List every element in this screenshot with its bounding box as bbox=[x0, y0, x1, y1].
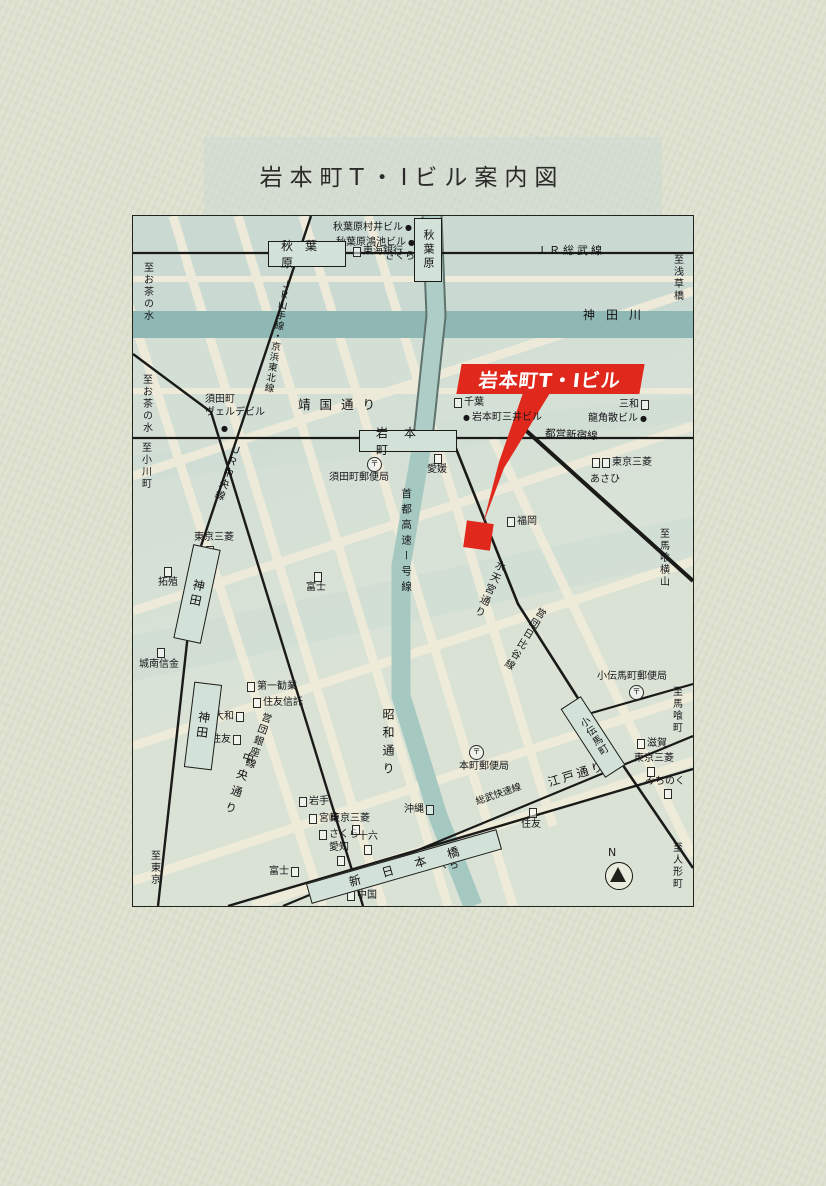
bank-name: 東京三菱 bbox=[330, 813, 370, 826]
bank-name: 住友 bbox=[521, 819, 541, 832]
bank-icon bbox=[507, 517, 515, 527]
road-name: 首都高速ー号線 bbox=[399, 488, 412, 597]
bank-label-tokyo-mitsubishi-kanda: 東京三菱 bbox=[194, 532, 234, 545]
building-name: 秋葉原村井ビル bbox=[333, 222, 403, 235]
building-dot: ● bbox=[463, 414, 470, 422]
bank-label-ehime: 愛媛 bbox=[427, 464, 447, 477]
bank-name: 愛媛 bbox=[427, 464, 447, 477]
bank-icon bbox=[247, 682, 255, 692]
direction-asakusabashi: 至浅草橋 bbox=[670, 254, 683, 302]
bank-name: 岩手 bbox=[309, 796, 329, 809]
bank-name: 城南信金 bbox=[139, 659, 179, 672]
bank-label-fuji-c: 富士 bbox=[306, 582, 326, 595]
building-label-verde: 須田町ヴェルデビル bbox=[205, 394, 265, 419]
direction-text: 至人形町 bbox=[669, 842, 682, 890]
post-office-icon-sudacho: 〒 bbox=[367, 457, 382, 472]
station-akihabara-jr: 秋葉原 bbox=[268, 241, 346, 267]
line-name: ＪＲ総武線 bbox=[535, 244, 605, 258]
direction-ogawamachi: 至小川町 bbox=[138, 442, 151, 490]
direction-ochanomizu-1: 至お茶の水 bbox=[140, 262, 153, 322]
direction-bakurocho: 至馬喰町 bbox=[669, 686, 682, 734]
bank-icon bbox=[529, 808, 537, 818]
bank-icon bbox=[314, 572, 322, 582]
bank-icon bbox=[236, 712, 244, 722]
bank-icon bbox=[602, 458, 610, 468]
bank-label-tokai: 東海銀行 bbox=[353, 246, 403, 259]
bank-label-sumitomo-trust: 住友信託 bbox=[253, 697, 303, 710]
bank-name: 三和 bbox=[619, 399, 639, 412]
building-dot: ● bbox=[405, 224, 412, 232]
building-label-ryukakusan: 龍角散ビル● bbox=[588, 413, 647, 426]
bank-name: 沖縄 bbox=[404, 804, 424, 817]
bank-label-tokyo-mitsubishi-k: 東京三菱 bbox=[634, 753, 674, 766]
bank-icon bbox=[664, 789, 672, 799]
bank-icon bbox=[337, 856, 345, 866]
bank-label-okinawa: 沖縄 bbox=[404, 804, 434, 817]
highlight-banner: 岩本町T・Iビル bbox=[456, 364, 644, 394]
post-office-name: 須田町郵便局 bbox=[329, 472, 389, 485]
bank-label-shiga: 滋賀 bbox=[637, 738, 667, 751]
bank-name: 富士 bbox=[306, 582, 326, 595]
station-label: 神田 bbox=[186, 578, 209, 611]
bank-label-juroku: 十六 bbox=[358, 831, 378, 844]
direction-tokyo: 至東京 bbox=[147, 850, 160, 886]
direction-text: 至小川町 bbox=[138, 442, 151, 490]
bank-label-daiichi-kangyo: 第一勧業 bbox=[247, 681, 297, 694]
station-label: 秋葉原 bbox=[281, 237, 345, 271]
direction-text: 至東京 bbox=[147, 850, 160, 886]
bank-label-chiba: 千葉 bbox=[454, 397, 484, 410]
road-label-shuto-expwy: 首都高速ー号線 bbox=[399, 488, 412, 597]
bank-name: 東京三菱 bbox=[194, 532, 234, 545]
bank-icon-sumitomo-e bbox=[529, 808, 537, 818]
bank-label-tokyo-mitsubishi-s: 東京三菱 bbox=[330, 813, 370, 826]
bank-icon-jonan bbox=[157, 648, 165, 658]
station-label: 神田 bbox=[193, 710, 214, 742]
north-arrow-icon bbox=[610, 867, 626, 882]
river-name: 神田川 bbox=[583, 308, 652, 323]
station-iwamotocho: 岩本町 bbox=[359, 430, 457, 452]
bank-icon bbox=[164, 567, 172, 577]
post-office-icon-honcho: 〒 bbox=[469, 745, 484, 760]
bank-icon bbox=[157, 648, 165, 658]
building-label-murai: 秋葉原村井ビル● bbox=[333, 222, 412, 235]
bank-icon-juroku bbox=[364, 845, 372, 855]
direction-text: 至浅草橋 bbox=[670, 254, 683, 302]
post-office-label-honcho: 本町郵便局 bbox=[459, 761, 509, 774]
bank-name: みちのく bbox=[645, 776, 685, 789]
bank-label-iwate: 岩手 bbox=[299, 796, 329, 809]
compass-north-label: N bbox=[608, 846, 616, 859]
map-wash bbox=[133, 216, 693, 316]
bank-icon bbox=[299, 797, 307, 807]
building-dot: ● bbox=[640, 415, 647, 423]
road-label-yasukuni: 靖国通り bbox=[298, 397, 384, 413]
bank-icon-michinoku bbox=[664, 789, 672, 799]
bank-label-jonan: 城南信金 bbox=[139, 659, 179, 672]
bank-name: 十六 bbox=[358, 831, 378, 844]
building-name: 岩本町三井ビル bbox=[472, 412, 542, 425]
direction-ochanomizu-2: 至お茶の水 bbox=[139, 374, 152, 434]
direction-text: 至お茶の水 bbox=[140, 262, 153, 322]
highlight-building-marker bbox=[463, 520, 493, 550]
bank-label-asahi: あさひ bbox=[590, 474, 620, 487]
bank-name: 東京三菱 bbox=[612, 457, 652, 470]
bank-name: あさひ bbox=[590, 474, 620, 487]
bank-label-fuji-s: 富士 bbox=[269, 866, 299, 879]
bank-icon bbox=[353, 247, 361, 257]
bank-icon bbox=[233, 735, 241, 745]
station-label: 岩本町 bbox=[376, 424, 456, 458]
direction-text: 至馬喰町 bbox=[669, 686, 682, 734]
river-label-kanda: 神田川 bbox=[583, 308, 652, 323]
post-office-icon: 〒 bbox=[469, 745, 484, 760]
post-office-name: 本町郵便局 bbox=[459, 761, 509, 774]
bank-name: 中国 bbox=[357, 890, 377, 903]
bank-name: 第一勧業 bbox=[257, 681, 297, 694]
bank-name: 愛知 bbox=[329, 842, 349, 855]
bank-label-aichi: 愛知 bbox=[329, 842, 349, 855]
building-label-mitsui: ●岩本町三井ビル bbox=[463, 412, 542, 425]
road-label-showa: 昭和通り bbox=[380, 708, 395, 780]
bank-icon bbox=[637, 739, 645, 749]
bank-icon bbox=[364, 845, 372, 855]
map-frame: 秋葉原 秋葉原 岩本町 神田 神田 小伝馬町 新日本橋 ＪＲ総武線 ＪＲ山手線・… bbox=[132, 215, 694, 907]
post-office-label-sudacho: 須田町郵便局 bbox=[329, 472, 389, 485]
highlight-banner-label: 岩本町T・Iビル bbox=[478, 366, 623, 393]
post-office-name: 小伝馬町郵便局 bbox=[597, 671, 667, 684]
building-name: ヴェルデビル bbox=[205, 407, 265, 420]
bank-label-fukuoka: 福岡 bbox=[507, 516, 537, 529]
bank-label-michinoku: みちのく bbox=[645, 776, 685, 789]
station-akihabara-showa: 秋葉原 bbox=[414, 218, 442, 282]
bank-icon bbox=[309, 814, 317, 824]
station-label: 秋葉原 bbox=[420, 229, 436, 271]
building-dot-verde: ● bbox=[221, 425, 228, 433]
bank-icon bbox=[641, 400, 649, 410]
bank-name: 住友信託 bbox=[263, 697, 303, 710]
bank-name: 富士 bbox=[269, 866, 289, 879]
building-name: 須田町 bbox=[205, 394, 265, 407]
bank-icon-takushoku bbox=[164, 567, 172, 577]
bank-icon bbox=[592, 458, 600, 468]
bank-icon bbox=[253, 698, 261, 708]
compass: N bbox=[605, 848, 635, 892]
page-title: 岩本町T・Iビル案内図 bbox=[260, 158, 565, 192]
bank-label-sumitomo-e: 住友 bbox=[521, 819, 541, 832]
bank-name: 千葉 bbox=[464, 397, 484, 410]
post-office-icon: 〒 bbox=[629, 685, 644, 700]
line-label-toei-shinjuku: 都営新宿線 bbox=[545, 428, 598, 444]
bank-name: 東京三菱 bbox=[634, 753, 674, 766]
direction-ningyocho: 至人形町 bbox=[669, 842, 682, 890]
bank-name: 拓殖 bbox=[158, 577, 178, 590]
post-office-icon-kodenmacho: 〒 bbox=[629, 685, 644, 700]
bank-icon-aichi bbox=[337, 856, 345, 866]
line-label-jr-sobu: ＪＲ総武線 bbox=[535, 244, 605, 258]
bank-icon-fuji-c bbox=[314, 572, 322, 582]
building-name: 龍角散ビル bbox=[588, 413, 638, 426]
bank-icon-tm-s bbox=[352, 825, 360, 835]
post-office-label-kodenmacho: 小伝馬町郵便局 bbox=[597, 671, 667, 684]
bank-icon bbox=[352, 825, 360, 835]
bank-name: 東海銀行 bbox=[363, 246, 403, 259]
line-name: 都営新宿線 bbox=[545, 428, 598, 444]
direction-bakuroyokoyama: 至馬喰横山 bbox=[656, 528, 669, 588]
road-name: 昭和通り bbox=[380, 708, 395, 780]
bank-icon bbox=[426, 805, 434, 815]
bank-label-sanwa: 三和 bbox=[619, 399, 649, 412]
bank-label-takushoku: 拓殖 bbox=[158, 577, 178, 590]
direction-text: 至馬喰横山 bbox=[656, 528, 669, 588]
building-dot: ● bbox=[221, 425, 228, 433]
bank-icon bbox=[291, 867, 299, 877]
road-name: 靖国通り bbox=[298, 397, 384, 413]
bank-label-tokyo-mitsubishi-e: 東京三菱 bbox=[592, 457, 652, 470]
bank-icon bbox=[319, 830, 327, 840]
bank-icon bbox=[454, 398, 462, 408]
bank-name: 滋賀 bbox=[647, 738, 667, 751]
bank-name: 福岡 bbox=[517, 516, 537, 529]
post-office-icon: 〒 bbox=[367, 457, 382, 472]
direction-text: 至お茶の水 bbox=[139, 374, 152, 434]
